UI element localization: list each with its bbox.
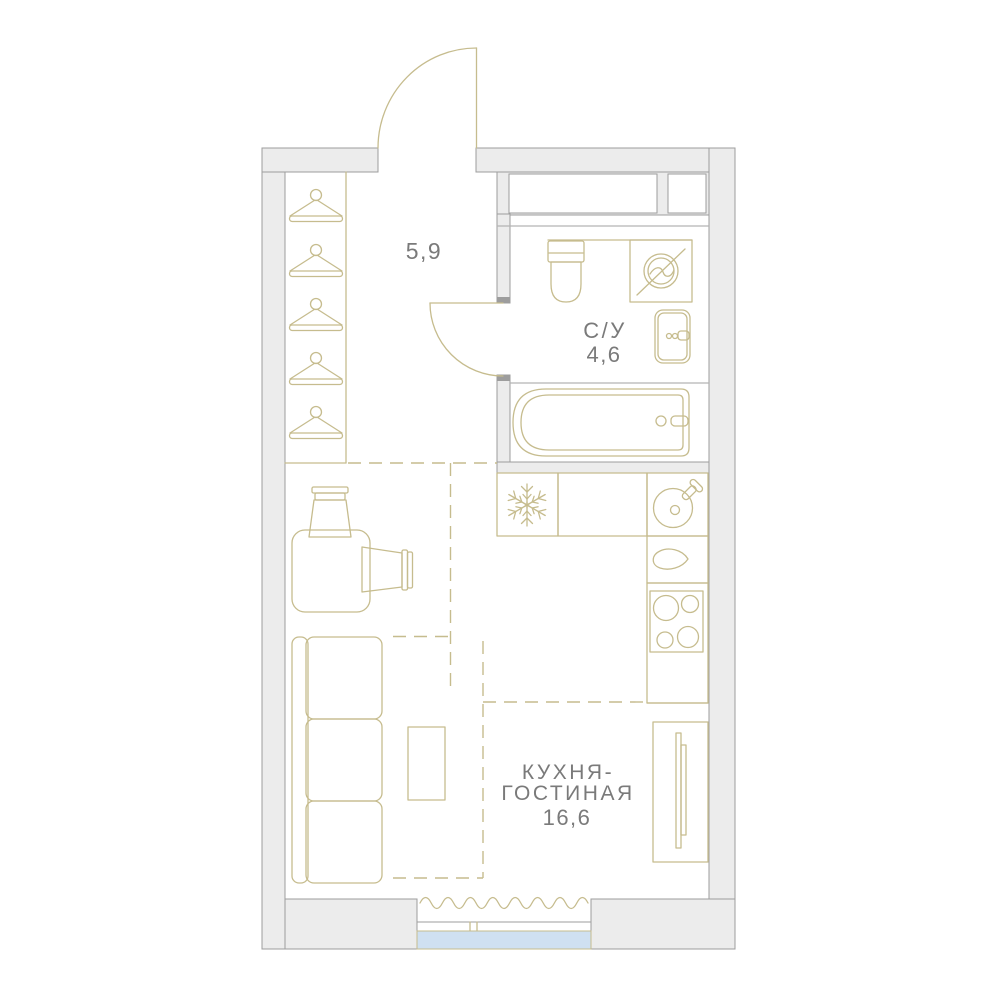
kitchen-living-area-label: 16,6 (543, 805, 592, 830)
kitchen-living-name-line2: ГОСТИНАЯ (501, 782, 634, 805)
wall-bathroom-lower (497, 375, 510, 473)
wall-right (709, 148, 735, 899)
bathroom-area-label: 4,6 (586, 342, 621, 367)
kitchen-sink-icon (654, 478, 704, 527)
hanger-icon (290, 245, 343, 277)
wall-left (262, 148, 285, 949)
tv-icon (676, 733, 681, 848)
window (417, 898, 591, 950)
drop-icon (653, 549, 688, 569)
window-frame (417, 922, 591, 931)
counter-drop-box (647, 536, 708, 583)
stove-icon (650, 591, 703, 652)
sofa-seat (306, 637, 382, 719)
hanger-icon (290, 299, 343, 331)
sofa-seat (306, 719, 382, 801)
washing-machine-icon (630, 240, 692, 302)
entrance-door-arc-icon (378, 48, 477, 148)
curtain-wave-icon (420, 898, 588, 909)
window-glass (417, 931, 591, 949)
wall-top-left (262, 148, 378, 172)
hanger-icon (290, 407, 343, 439)
hanger-icon (290, 190, 343, 222)
counter-middle-box (558, 473, 647, 536)
dining-table (292, 530, 370, 612)
door-jamb-top (497, 297, 510, 303)
bathroom-name-label: С/У (583, 318, 626, 343)
wall-top-right (476, 148, 735, 172)
floor-plan-svg: 5,9 С/У 4,6 КУХНЯ- ГОСТИНАЯ 16,6 (0, 0, 1000, 1000)
bathroom-door (430, 303, 503, 376)
zone-boundaries (348, 463, 708, 878)
coffee-table (408, 727, 445, 800)
sofa-seat (306, 801, 382, 883)
entrance-door (378, 48, 477, 148)
room-labels: 5,9 С/У 4,6 КУХНЯ- ГОСТИНАЯ 16,6 (406, 238, 635, 830)
sofa (292, 637, 382, 883)
hallway-wardrobe (285, 172, 346, 463)
tv-icon (681, 745, 686, 835)
kitchen-living-name-line1: КУХНЯ- (522, 761, 614, 784)
floor-plan: 5,9 С/У 4,6 КУХНЯ- ГОСТИНАЯ 16,6 (0, 0, 1000, 1000)
bathtub-icon (513, 389, 689, 456)
wall-bottom-right (591, 899, 735, 949)
shaft-duct-small (668, 174, 706, 213)
living-area (292, 487, 708, 883)
tv-cabinet (653, 722, 708, 862)
shaft-duct-large (509, 174, 657, 213)
wall-bathroom-upper (497, 214, 510, 303)
hanger-icon (290, 353, 343, 385)
kitchen (497, 473, 708, 703)
wall-bottom-left (285, 899, 417, 949)
bathroom-sink-icon (655, 310, 690, 363)
hallway-area-label: 5,9 (406, 238, 442, 264)
wall-bathroom-bottom (497, 462, 709, 473)
walls (262, 148, 735, 949)
toilet-icon (548, 241, 584, 302)
bathroom-door-arc-icon (430, 303, 503, 376)
fridge-snowflake-icon (506, 484, 548, 526)
